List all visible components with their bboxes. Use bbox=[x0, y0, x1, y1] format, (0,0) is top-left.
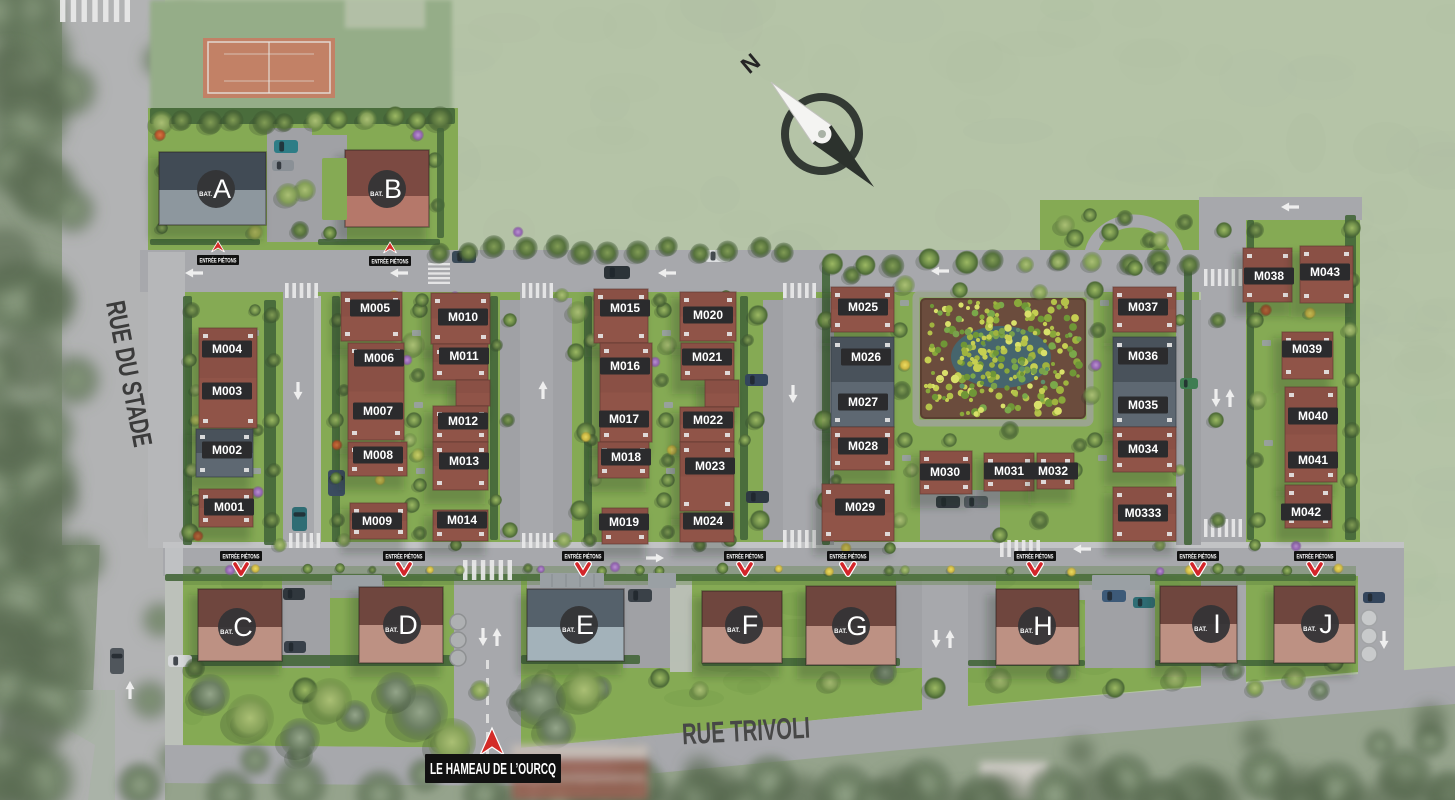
svg-text:M018: M018 bbox=[611, 450, 641, 464]
svg-text:M003: M003 bbox=[212, 384, 242, 398]
svg-text:LE HAMEAU DE L’OURCQ: LE HAMEAU DE L’OURCQ bbox=[430, 761, 556, 778]
svg-text:M012: M012 bbox=[448, 414, 478, 428]
svg-text:G: G bbox=[846, 611, 867, 641]
svg-text:M035: M035 bbox=[1128, 398, 1158, 412]
svg-text:M021: M021 bbox=[692, 350, 722, 364]
svg-text:M027: M027 bbox=[848, 395, 878, 409]
svg-text:M038: M038 bbox=[1254, 269, 1284, 283]
svg-text:BAT.: BAT. bbox=[727, 628, 740, 634]
svg-text:M025: M025 bbox=[848, 300, 878, 314]
svg-text:ENTRÉE PIÉTONS: ENTRÉE PIÉTONS bbox=[727, 552, 764, 560]
svg-text:F: F bbox=[742, 610, 759, 640]
svg-text:A: A bbox=[213, 174, 231, 204]
svg-text:M0333: M0333 bbox=[1125, 506, 1162, 520]
svg-text:BAT.: BAT. bbox=[562, 628, 575, 634]
svg-text:M013: M013 bbox=[449, 454, 479, 468]
svg-text:M019: M019 bbox=[609, 515, 639, 529]
svg-text:B: B bbox=[384, 174, 402, 204]
svg-text:M023: M023 bbox=[695, 459, 725, 473]
svg-text:M022: M022 bbox=[693, 413, 723, 427]
svg-text:M011: M011 bbox=[449, 349, 479, 363]
svg-text:M005: M005 bbox=[360, 301, 390, 315]
svg-text:M037: M037 bbox=[1128, 300, 1158, 314]
svg-text:BAT.: BAT. bbox=[220, 630, 233, 636]
svg-text:M024: M024 bbox=[693, 514, 723, 528]
svg-text:ENTRÉE PIÉTONS: ENTRÉE PIÉTONS bbox=[200, 256, 237, 264]
svg-text:I: I bbox=[1213, 609, 1221, 639]
svg-text:M002: M002 bbox=[212, 443, 242, 457]
svg-text:M028: M028 bbox=[848, 439, 878, 453]
svg-text:M034: M034 bbox=[1128, 442, 1158, 456]
svg-text:J: J bbox=[1319, 609, 1333, 639]
svg-text:BAT.: BAT. bbox=[1020, 629, 1033, 635]
svg-text:M029: M029 bbox=[845, 500, 875, 514]
svg-text:BAT.: BAT. bbox=[199, 192, 212, 198]
svg-text:M041: M041 bbox=[1298, 453, 1328, 467]
svg-text:M001: M001 bbox=[214, 500, 244, 514]
svg-text:M010: M010 bbox=[448, 310, 478, 324]
svg-text:M016: M016 bbox=[610, 359, 640, 373]
svg-text:ENTRÉE PIÉTONS: ENTRÉE PIÉTONS bbox=[1297, 552, 1334, 560]
svg-text:M036: M036 bbox=[1128, 349, 1158, 363]
svg-text:M008: M008 bbox=[363, 448, 393, 462]
svg-text:ENTRÉE PIÉTONS: ENTRÉE PIÉTONS bbox=[1017, 552, 1054, 560]
svg-text:M020: M020 bbox=[693, 308, 723, 322]
svg-text:M004: M004 bbox=[212, 342, 242, 356]
svg-text:M039: M039 bbox=[1292, 342, 1322, 356]
svg-text:M015: M015 bbox=[610, 301, 640, 315]
svg-text:M014: M014 bbox=[447, 513, 477, 527]
svg-text:BAT.: BAT. bbox=[834, 629, 847, 635]
svg-text:M042: M042 bbox=[1291, 505, 1321, 519]
svg-text:ENTRÉE PIÉTONS: ENTRÉE PIÉTONS bbox=[223, 552, 260, 560]
svg-text:M006: M006 bbox=[364, 351, 394, 365]
svg-text:ENTRÉE PIÉTONS: ENTRÉE PIÉTONS bbox=[1180, 552, 1217, 560]
svg-text:D: D bbox=[398, 610, 418, 640]
svg-text:M032: M032 bbox=[1038, 464, 1068, 478]
svg-text:H: H bbox=[1033, 611, 1053, 641]
svg-text:BAT.: BAT. bbox=[385, 628, 398, 634]
svg-text:M030: M030 bbox=[930, 465, 960, 479]
svg-text:BAT.: BAT. bbox=[370, 192, 383, 198]
svg-text:BAT.: BAT. bbox=[1303, 627, 1316, 633]
svg-text:M017: M017 bbox=[609, 412, 639, 426]
svg-text:C: C bbox=[233, 612, 253, 642]
svg-text:ENTRÉE PIÉTONS: ENTRÉE PIÉTONS bbox=[830, 552, 867, 560]
svg-text:M043: M043 bbox=[1310, 265, 1340, 279]
svg-text:ENTRÉE PIÉTONS: ENTRÉE PIÉTONS bbox=[372, 257, 409, 265]
svg-text:E: E bbox=[576, 610, 594, 640]
svg-text:M026: M026 bbox=[851, 350, 881, 364]
svg-text:M040: M040 bbox=[1298, 409, 1328, 423]
svg-text:M031: M031 bbox=[994, 464, 1024, 478]
svg-text:M007: M007 bbox=[363, 404, 393, 418]
svg-text:RUE TRIVOLI: RUE TRIVOLI bbox=[681, 712, 811, 752]
svg-text:ENTRÉE PIÉTONS: ENTRÉE PIÉTONS bbox=[565, 552, 602, 560]
svg-text:ENTRÉE PIÉTONS: ENTRÉE PIÉTONS bbox=[386, 552, 423, 560]
svg-text:BAT.: BAT. bbox=[1194, 627, 1207, 633]
svg-text:M009: M009 bbox=[362, 514, 392, 528]
